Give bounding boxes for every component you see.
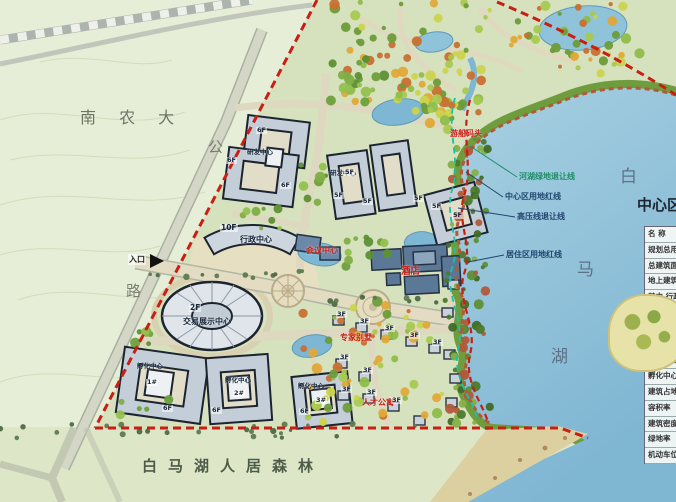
table-row: 建筑占地面积 — [645, 385, 676, 401]
table-row: 容积率 — [645, 401, 676, 417]
table-row: 机动车位 — [645, 448, 676, 464]
table-row: 名 称 — [645, 227, 676, 243]
expo-center-building — [162, 282, 262, 350]
lake-island — [608, 294, 676, 372]
table-row: 绿地率 — [645, 432, 676, 448]
table-row: 建筑密度 — [645, 417, 676, 433]
master-plan-map: 南 农 大 公 路 白 马 湖 白马湖人居森林 河湖绿地退让线 中心区用地红线 … — [0, 0, 676, 502]
table-row: 规划总用地 — [645, 243, 676, 259]
incubator-2 — [206, 354, 272, 424]
table-row: 总建筑面积 — [645, 259, 676, 275]
map-canvas — [0, 0, 676, 502]
table-row: 地上建筑面积 — [645, 274, 676, 290]
table-title: 中心区 — [637, 194, 676, 215]
